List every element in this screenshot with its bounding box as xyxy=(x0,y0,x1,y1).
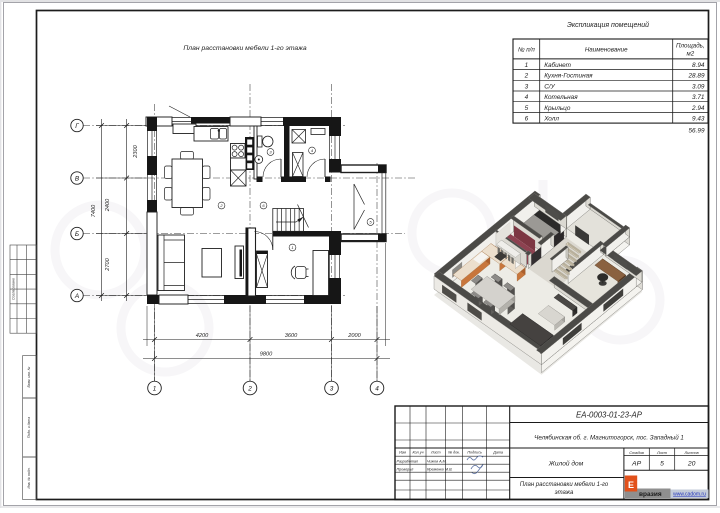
svg-text:Котельная: Котельная xyxy=(544,94,578,101)
svg-text:Крыльцо: Крыльцо xyxy=(544,105,571,112)
svg-text:План расстановки мебели 1-го: План расстановки мебели 1-го xyxy=(520,482,609,488)
svg-text:№ п/п: № п/п xyxy=(518,47,536,54)
svg-text:В: В xyxy=(75,175,80,182)
svg-text:м2: м2 xyxy=(687,51,695,58)
svg-text:1: 1 xyxy=(525,62,529,69)
svg-text:Согласовано: Согласовано xyxy=(12,278,16,300)
svg-text:Разработал: Разработал xyxy=(397,459,419,463)
svg-text:56.99: 56.99 xyxy=(689,128,705,135)
svg-text:Проверил: Проверил xyxy=(397,467,414,471)
svg-text:3.71: 3.71 xyxy=(692,94,705,101)
svg-text:3600: 3600 xyxy=(285,333,298,339)
svg-text:2.94: 2.94 xyxy=(691,105,705,112)
svg-text:6: 6 xyxy=(525,116,529,123)
svg-text:4: 4 xyxy=(375,385,379,392)
svg-text:2: 2 xyxy=(524,73,529,80)
svg-text:А: А xyxy=(74,293,79,300)
svg-text:Листов: Листов xyxy=(684,450,699,455)
svg-text:С/У: С/У xyxy=(544,83,555,90)
svg-text:2000: 2000 xyxy=(347,333,361,339)
svg-text:Экспликация помещений: Экспликация помещений xyxy=(567,21,649,29)
svg-text:2300: 2300 xyxy=(133,144,139,158)
svg-text:Дата: Дата xyxy=(492,451,503,455)
svg-text:4200: 4200 xyxy=(196,333,209,339)
svg-text:Стадия: Стадия xyxy=(629,450,644,455)
svg-text:Е: Е xyxy=(628,480,634,490)
svg-text:7400: 7400 xyxy=(91,204,97,217)
svg-text:1: 1 xyxy=(291,245,293,250)
svg-text:Лист: Лист xyxy=(430,451,441,455)
svg-text:Наименование: Наименование xyxy=(585,47,628,54)
svg-text:3: 3 xyxy=(330,385,334,392)
svg-text:Инв. № подл.: Инв. № подл. xyxy=(27,467,31,488)
svg-text:этажа: этажа xyxy=(555,490,574,496)
svg-text:Жилой дом: Жилой дом xyxy=(548,460,584,468)
svg-text:вразия: вразия xyxy=(639,491,662,498)
svg-text:Лист: Лист xyxy=(656,450,668,455)
svg-text:3.09: 3.09 xyxy=(692,83,705,90)
svg-text:8.94: 8.94 xyxy=(692,62,705,69)
svg-text:Площадь,: Площадь, xyxy=(676,43,705,50)
svg-text:ЕА-0003-01-23-АР: ЕА-0003-01-23-АР xyxy=(576,411,643,420)
svg-text:28.89: 28.89 xyxy=(688,73,705,80)
svg-text:4: 4 xyxy=(525,94,529,101)
svg-text:Г: Г xyxy=(75,123,79,130)
svg-text:3: 3 xyxy=(525,83,529,90)
svg-text:9800: 9800 xyxy=(260,352,273,358)
svg-text:Челябинская об. г. Магнитогорс: Челябинская об. г. Магнитогорск, пос. За… xyxy=(534,435,684,442)
svg-text:20: 20 xyxy=(687,461,696,468)
svg-text:Холл: Холл xyxy=(543,116,559,123)
svg-text:Б: Б xyxy=(75,231,79,238)
svg-text:www.cadom.ru: www.cadom.ru xyxy=(673,491,706,497)
svg-text:Кабинет: Кабинет xyxy=(544,61,571,69)
svg-text:№ док.: № док. xyxy=(448,451,460,455)
svg-text:2: 2 xyxy=(247,385,252,392)
svg-text:2400: 2400 xyxy=(105,198,111,212)
svg-text:2700: 2700 xyxy=(105,257,111,271)
svg-text:9.43: 9.43 xyxy=(692,116,705,123)
svg-text:Чижов А.М.: Чижов А.М. xyxy=(427,459,447,463)
svg-text:План расстановки мебели 1-го э: План расстановки мебели 1-го этажа xyxy=(183,44,307,52)
svg-text:Яременко М.В.: Яременко М.В. xyxy=(426,467,453,471)
svg-text:Подпись: Подпись xyxy=(467,451,482,455)
svg-text:Кухня-Гостиная: Кухня-Гостиная xyxy=(544,73,593,80)
svg-text:1: 1 xyxy=(153,385,157,392)
svg-text:Кол.уч: Кол.уч xyxy=(413,451,424,455)
svg-text:Взам. инв. №: Взам. инв. № xyxy=(27,366,31,387)
svg-text:Изм: Изм xyxy=(399,451,406,455)
svg-text:АР: АР xyxy=(631,461,642,468)
svg-text:Подп. и дата: Подп. и дата xyxy=(27,417,31,438)
svg-text:5: 5 xyxy=(525,105,529,112)
svg-text:5: 5 xyxy=(660,461,664,468)
